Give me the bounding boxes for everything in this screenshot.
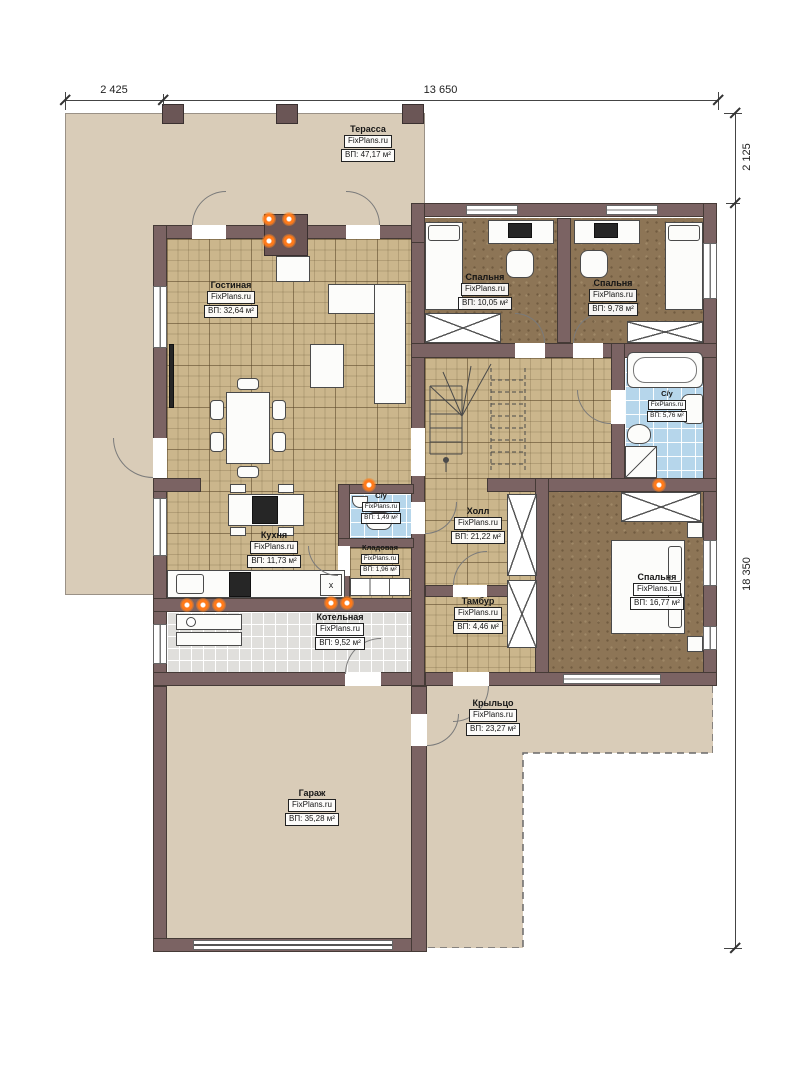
terrace-column — [276, 104, 298, 124]
room-area: ВП: 23,27 м² — [466, 723, 520, 736]
room-label-wc: С/у FixPlans.ru ВП: 1,49 м² — [352, 492, 410, 524]
room-area: ВП: 4,46 м² — [453, 621, 503, 634]
chair — [237, 378, 259, 390]
wall-bedrooms-divider — [557, 218, 571, 343]
nightstand — [687, 636, 703, 652]
wall-bedroom3-west — [535, 478, 549, 686]
room-area: ВП: 11,73 м² — [247, 555, 300, 568]
boiler-window — [153, 624, 167, 664]
terrace-column — [402, 104, 424, 124]
dim-label-top-left: 2 425 — [65, 84, 163, 96]
stairs — [427, 356, 537, 478]
radiator-icon — [212, 598, 226, 612]
office-chair — [580, 250, 608, 278]
computer — [594, 223, 618, 238]
flame-icon — [282, 234, 296, 248]
room-area: ВП: 1,96 м² — [360, 565, 400, 576]
room-area: ВП: 47,17 м² — [341, 149, 395, 162]
chair — [237, 466, 259, 478]
chair — [210, 432, 224, 452]
wall-ne-north — [411, 203, 717, 217]
dim-label-top-main: 13 650 — [163, 84, 718, 96]
brand-watermark: FixPlans.ru — [454, 517, 502, 530]
room-name: Кухня — [261, 530, 287, 540]
room-label-kitchen: Кухня FixPlans.ru ВП: 11,73 м² — [234, 530, 314, 568]
room-label-bedroom1: Спальня FixPlans.ru ВП: 10,05 м² — [448, 272, 522, 310]
shower — [625, 446, 657, 478]
room-area: ВП: 21,22 м² — [451, 531, 505, 544]
room-name: Гараж — [299, 788, 326, 798]
brand-watermark: FixPlans.ru — [207, 291, 255, 304]
room-label-porch: Крыльцо FixPlans.ru ВП: 23,27 м² — [450, 698, 536, 736]
room-label-tambour: Тамбур FixPlans.ru ВП: 4,46 м² — [440, 596, 516, 634]
room-name: Спальня — [594, 278, 633, 288]
room-area: ВП: 9,52 м² — [315, 637, 365, 650]
room-name: С/у — [661, 390, 673, 399]
brand-watermark: FixPlans.ru — [344, 135, 392, 148]
bedroom3-window-south — [563, 674, 661, 684]
bathroom-door-opening — [611, 390, 625, 424]
boiler-garage-door-opening — [345, 672, 381, 686]
room-label-hall: Холл FixPlans.ru ВП: 21,22 м² — [440, 506, 516, 544]
flame-icon — [282, 212, 296, 226]
bedroom3-window-east2 — [703, 626, 717, 650]
flame-icon — [262, 234, 276, 248]
fridge — [229, 572, 251, 597]
dining-table — [226, 392, 270, 464]
wardrobe — [425, 313, 501, 343]
terrace-door-opening — [192, 225, 226, 239]
brand-watermark: FixPlans.ru — [648, 400, 687, 411]
living-landing-opening — [411, 428, 425, 476]
room-area: ВП: 10,05 м² — [458, 297, 512, 310]
boiler-dial — [186, 617, 196, 627]
wall-ne-corner — [411, 203, 425, 243]
room-name: Крыльцо — [473, 698, 514, 708]
computer — [508, 223, 532, 238]
bedroom2-side-window — [703, 243, 717, 299]
dim-label-right-top: 2 125 — [741, 129, 753, 185]
brand-watermark: FixPlans.ru — [633, 583, 681, 596]
room-label-pantry: Кладовая FixPlans.ru ВП: 1,96 м² — [348, 544, 412, 576]
garage-door — [193, 940, 393, 950]
room-label-bedroom2: Спальня FixPlans.ru ВП: 9,78 м² — [576, 278, 650, 316]
flame-icon — [262, 212, 276, 226]
wc-door-opening — [411, 502, 425, 534]
pillow — [668, 225, 700, 241]
garage-porch-door-opening — [411, 714, 427, 746]
room-area: ВП: 9,78 м² — [588, 303, 638, 316]
sofa — [374, 284, 406, 404]
boiler-unit — [176, 632, 242, 646]
chair — [272, 400, 286, 420]
room-area: ВП: 35,28 м² — [285, 813, 339, 826]
radiator-icon — [324, 596, 338, 610]
wall-bedroom3-north — [487, 478, 717, 492]
radiator-icon — [180, 598, 194, 612]
radiator-icon — [196, 598, 210, 612]
room-area: ВП: 16,77 м² — [630, 597, 684, 610]
radiator-icon — [362, 478, 376, 492]
bedroom2-window — [606, 205, 658, 215]
bedroom2-door-opening — [573, 343, 603, 358]
room-name: Гостиная — [211, 280, 252, 290]
wall-pier-living-kitchen — [153, 478, 201, 492]
terrace-side-door-opening — [153, 438, 167, 478]
dim-label-right-main: 18 350 — [741, 542, 753, 606]
chair — [272, 432, 286, 452]
room-area: ВП: 1,49 м² — [361, 513, 401, 524]
room-name: Тамбур — [462, 596, 495, 606]
room-label-boiler: Котельная FixPlans.ru ВП: 9,52 м² — [298, 612, 382, 650]
pillow — [428, 225, 460, 241]
room-label-living: Гостиная FixPlans.ru ВП: 32,64 м² — [190, 280, 272, 318]
bedroom3-window-east1 — [703, 540, 717, 586]
chair — [210, 400, 224, 420]
brand-watermark: FixPlans.ru — [250, 541, 298, 554]
brand-watermark: FixPlans.ru — [461, 283, 509, 296]
stool — [278, 484, 294, 493]
radiator-icon — [652, 478, 666, 492]
room-name: Холл — [467, 506, 490, 516]
dimension-line-right — [735, 113, 736, 948]
coffee-table — [310, 344, 344, 388]
kitchen-window — [153, 498, 167, 556]
wall-boiler-garage — [153, 672, 427, 686]
room-label-bathroom: С/у FixPlans.ru ВП: 5,76 м² — [630, 390, 704, 422]
living-window — [153, 286, 167, 348]
kitchen-sink — [176, 574, 204, 594]
bathroom-sink — [627, 424, 651, 444]
cooktop — [252, 496, 278, 524]
brand-watermark: FixPlans.ru — [469, 709, 517, 722]
brand-watermark: FixPlans.ru — [316, 623, 364, 636]
room-label-bedroom3: Спальня FixPlans.ru ВП: 16,77 м² — [613, 572, 701, 610]
radiator-icon — [340, 596, 354, 610]
room-name: Спальня — [466, 272, 505, 282]
nightstand — [687, 522, 703, 538]
brand-watermark: FixPlans.ru — [361, 554, 400, 565]
room-name: Кладовая — [362, 544, 398, 553]
brand-watermark: FixPlans.ru — [362, 502, 401, 513]
room-area: ВП: 32,64 м² — [204, 305, 258, 318]
entry-door-opening — [453, 672, 489, 686]
terrace-column — [162, 104, 184, 124]
appliance-box: x — [320, 574, 342, 596]
bathtub-inner — [633, 357, 697, 383]
floor-plan: 2 425 13 650 2 125 18 350 — [0, 0, 792, 1080]
bedroom1-window — [466, 205, 518, 215]
room-name: С/у — [375, 492, 387, 501]
room-name: Терасса — [350, 124, 386, 134]
brand-watermark: FixPlans.ru — [589, 289, 637, 302]
stool — [230, 484, 246, 493]
room-area: ВП: 5,76 м² — [647, 411, 687, 422]
brand-watermark: FixPlans.ru — [288, 799, 336, 812]
room-label-terrace: Терасса FixPlans.ru ВП: 47,17 м² — [330, 124, 406, 162]
wardrobe — [627, 321, 703, 343]
tv — [169, 344, 174, 408]
pantry-shelves — [350, 578, 410, 596]
room-name: Спальня — [638, 572, 677, 582]
room-name: Котельная — [316, 612, 363, 622]
wall-garage-west — [153, 686, 167, 952]
room-label-garage: Гараж FixPlans.ru ВП: 35,28 м² — [272, 788, 352, 826]
wardrobe — [621, 492, 701, 522]
terrace-door-opening — [346, 225, 380, 239]
brand-watermark: FixPlans.ru — [454, 607, 502, 620]
dim-ext — [718, 92, 719, 110]
fireplace-hearth — [276, 256, 310, 282]
